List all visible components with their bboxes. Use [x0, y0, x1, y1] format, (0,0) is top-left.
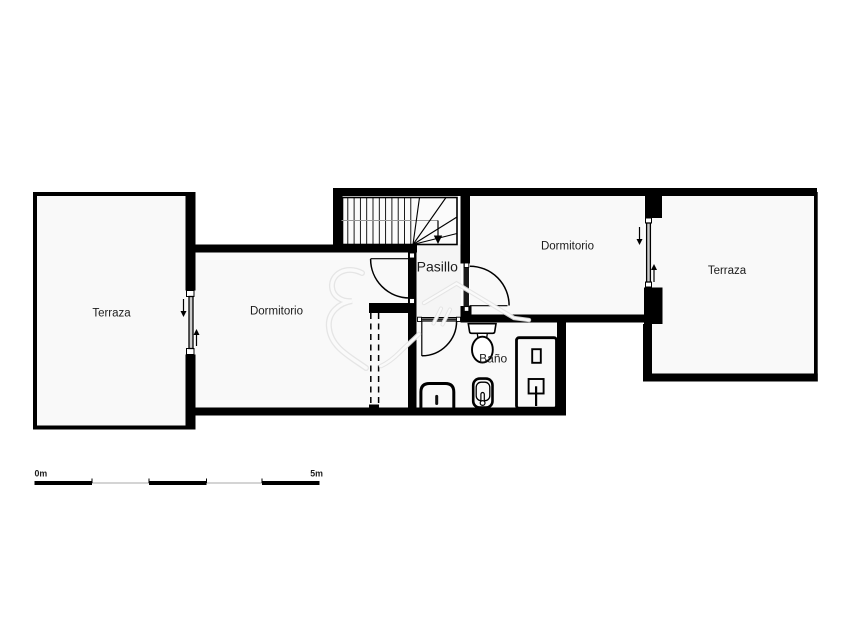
svg-text:0m: 0m	[35, 469, 48, 479]
svg-text:Baño: Baño	[479, 352, 507, 366]
svg-text:Terraza: Terraza	[708, 265, 747, 277]
svg-text:Dormitorio: Dormitorio	[250, 306, 303, 318]
svg-text:Dormitorio: Dormitorio	[541, 241, 594, 253]
svg-text:5m: 5m	[310, 469, 323, 479]
svg-text:Terraza: Terraza	[92, 308, 131, 320]
svg-text:Pasillo: Pasillo	[417, 259, 458, 275]
